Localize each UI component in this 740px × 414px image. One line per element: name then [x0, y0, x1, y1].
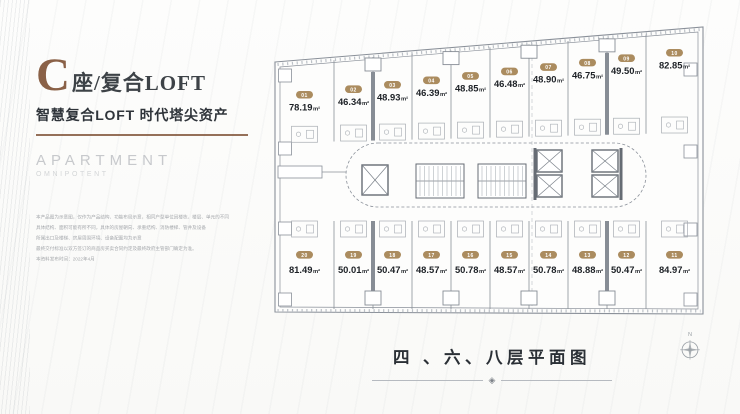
unit-number: 03	[389, 83, 396, 89]
disclaimer-line: 具体结构、面积可能有所不同，具体的房屋朝向、承重结构、消防楼梯、管井及设备	[36, 223, 246, 234]
unit-number: 04	[428, 79, 435, 85]
plan-caption-text: 四 、六、八层平面图	[372, 344, 612, 368]
unit-number: 05	[467, 74, 474, 80]
unit-number: 20	[301, 253, 308, 259]
plan-caption: 四 、六、八层平面图 ◈	[372, 344, 612, 385]
compass-icon: N	[676, 328, 704, 366]
unit-number: 13	[584, 253, 591, 259]
disclaimer-line: 所属出口及楼梯、房屋周围环境、设备配置均为示意	[36, 233, 246, 244]
left-panel: C 座/复合LOFT 智慧复合LOFT 时代塔尖资产 APARTMENT OMN…	[36, 52, 251, 178]
unit-number: 02	[350, 87, 357, 93]
disclaimer-line: 最终交付标准以双方签订的商品房买卖合同约定及最终政府主管部门确定为准。	[36, 244, 246, 255]
unit-number: 01	[301, 93, 308, 99]
unit-number: 12	[623, 253, 630, 259]
poster-page: { "left_panel": { "title_letter": "C", "…	[0, 0, 740, 414]
disclaimer-text: 本产品图为示意图，仅作为产品结构、功能布局示意，相同户型单位因楼栋、楼层、单元的…	[36, 212, 246, 265]
unit-number: 06	[506, 70, 513, 76]
title-letter: C	[36, 52, 70, 98]
unit-number: 18	[389, 253, 396, 259]
title-underline	[36, 134, 248, 136]
unit-number: 10	[671, 51, 678, 57]
disclaimer-line: 本资料发布时间：2022年4月	[36, 254, 246, 265]
unit-number: 09	[623, 56, 630, 62]
left-edge-lines	[0, 0, 30, 414]
disclaimer-line: 本产品图为示意图，仅作为产品结构、功能布局示意，相同户型单位因楼栋、楼层、单元的…	[36, 212, 246, 223]
caption-rule-right	[501, 380, 612, 381]
page-title: C 座/复合LOFT	[36, 52, 251, 98]
unit-number: 14	[545, 253, 552, 259]
compass-north-label: N	[688, 332, 692, 338]
diamond-icon: ◈	[489, 376, 496, 385]
caption-rule: ◈	[372, 376, 612, 385]
unit-number: 15	[506, 253, 513, 259]
floor-plan: 0178.19m²0246.34m²0348.93m²0446.39m²0548…	[258, 16, 718, 338]
subtitle: 智慧复合LOFT 时代塔尖资产	[36, 105, 251, 125]
brand-english-sub: OMNIPOTENT	[36, 171, 251, 178]
unit-number: 16	[467, 253, 474, 259]
caption-rule-left	[372, 380, 483, 381]
brand-english: APARTMENT	[36, 152, 251, 169]
unit-number: 17	[428, 253, 435, 259]
unit-number: 11	[671, 253, 677, 259]
unit-number: 08	[584, 61, 591, 67]
unit-number: 07	[545, 65, 552, 71]
unit-number: 19	[350, 253, 357, 259]
title-rest: 座/复合LOFT	[72, 67, 206, 97]
